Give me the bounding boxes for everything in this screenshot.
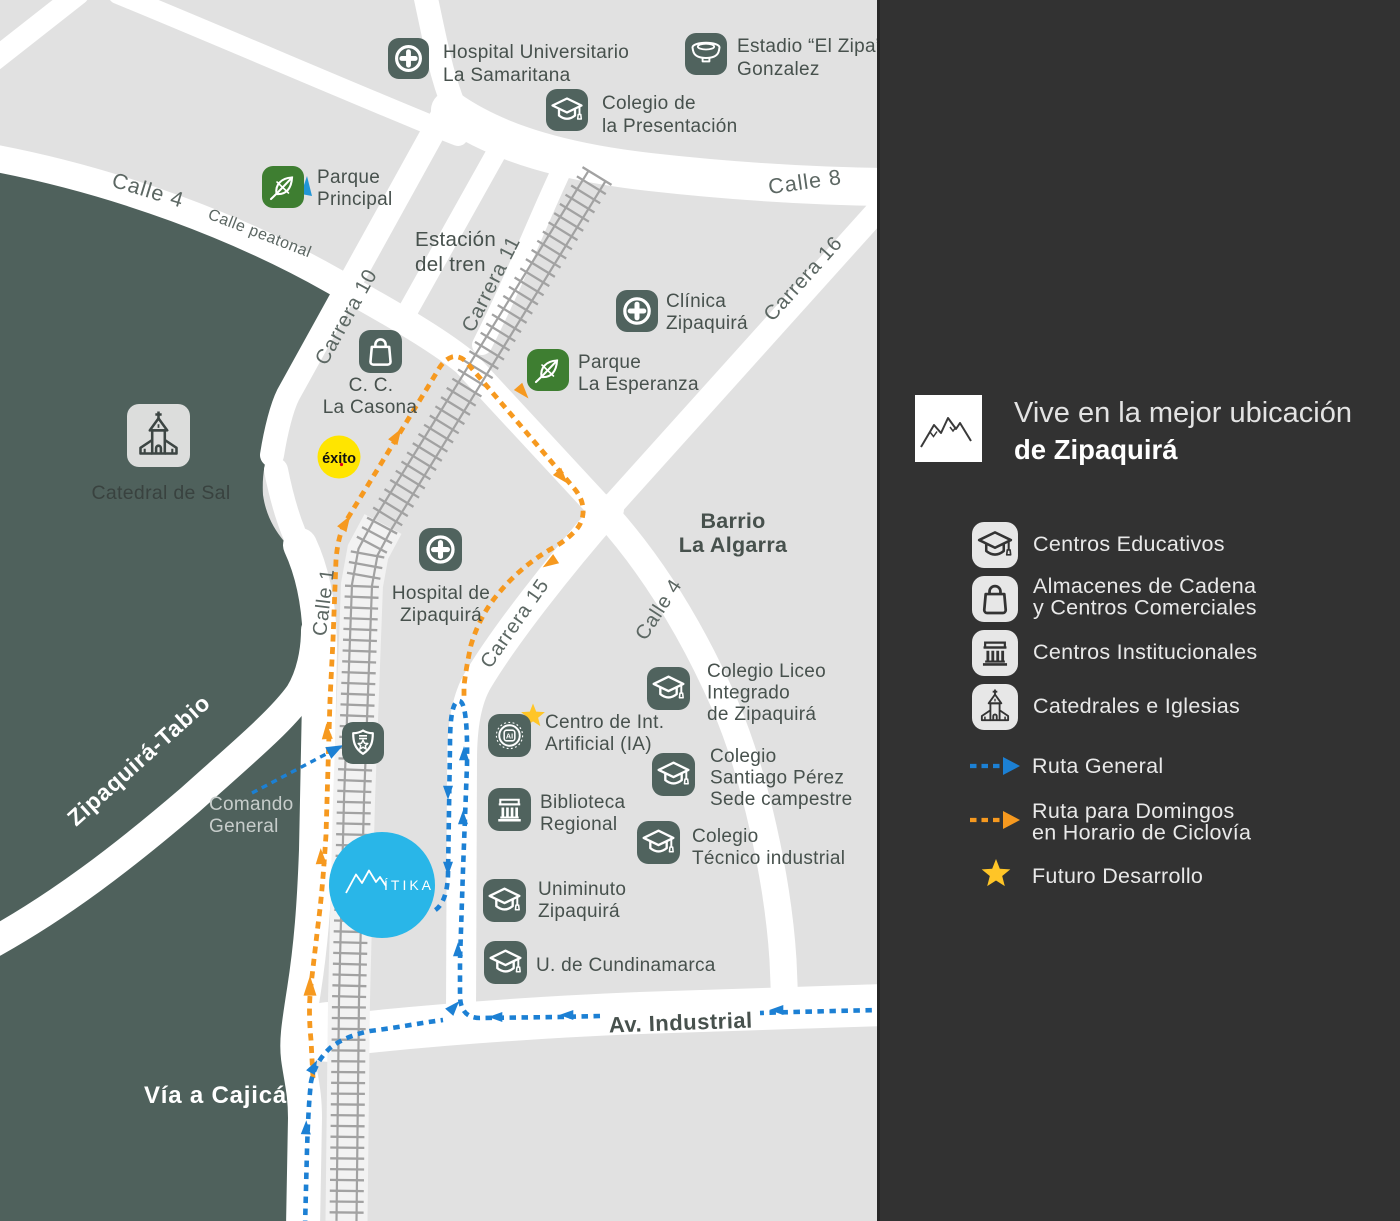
svg-text:Centros Institucionales: Centros Institucionales [1033,640,1257,664]
svg-text:ÍTIKA: ÍTIKA [384,877,434,893]
svg-text:U. de Cundinamarca: U. de Cundinamarca [536,955,716,976]
svg-text:Catedrales e Iglesias: Catedrales e Iglesias [1033,694,1240,718]
svg-text:BibliotecaRegional: BibliotecaRegional [540,792,626,835]
svg-text:Hospital deZipaquirá: Hospital deZipaquirá [392,583,490,626]
svg-text:de Zipaquirá: de Zipaquirá [1014,434,1178,465]
svg-text:Vía a Cajicá: Vía a Cajicá [144,1082,287,1109]
svg-text:C. C.: C. C. [349,375,394,396]
svg-text:Ruta para Domingosen Horario d: Ruta para Domingosen Horario de Ciclovía [1032,799,1251,845]
svg-text:Futuro Desarrollo: Futuro Desarrollo [1032,864,1203,888]
svg-text:Ruta General: Ruta General [1032,754,1163,778]
svg-text:Almacenes de Cadenay Centros C: Almacenes de Cadenay Centros Comerciales [1033,574,1257,620]
svg-text:Centro de Int.Artificial (IA): Centro de Int.Artificial (IA) [545,712,664,755]
svg-text:Catedral de Sal: Catedral de Sal [92,482,231,504]
svg-text:Vive en la mejor ubicación: Vive en la mejor ubicación [1014,397,1352,429]
svg-text:UniminutoZipaquirá: UniminutoZipaquirá [538,879,626,922]
svg-text:éxito: éxito [322,451,356,467]
svg-text:Centros Educativos: Centros Educativos [1033,532,1225,556]
svg-text:Av. Industrial: Av. Industrial [608,1008,753,1038]
svg-text:La Casona: La Casona [323,397,418,418]
